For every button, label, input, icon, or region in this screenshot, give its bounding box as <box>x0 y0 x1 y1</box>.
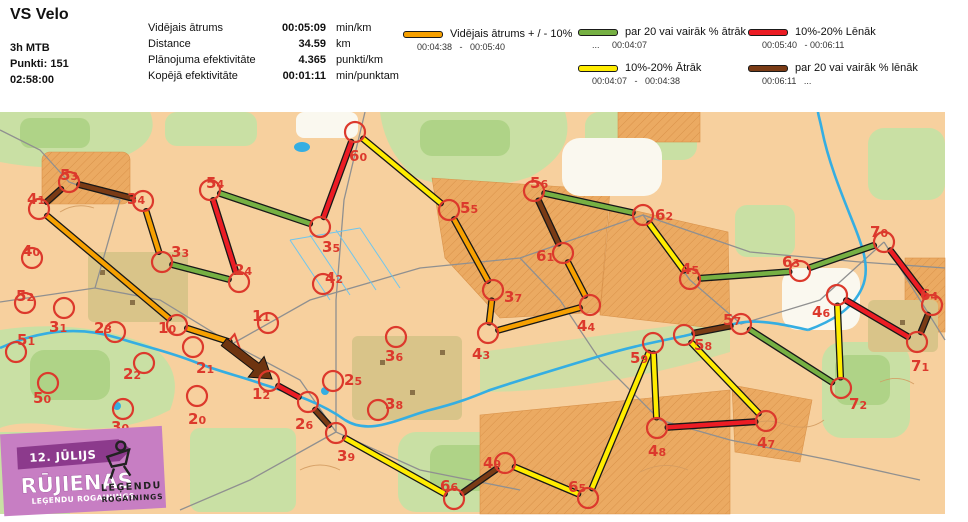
points-total: Punkti: 151 <box>10 56 69 72</box>
legend-slow20: par 20 vai vairāk % lēnāk 00:06:11 ... <box>748 62 918 86</box>
leg-43-37 <box>489 301 491 322</box>
legend-slow10: 10%-20% Lēnāk 00:05:40 - 00:06:11 <box>748 26 876 50</box>
legend-avg: Vidējais ātrums + / - 10% 00:04:38 - 00:… <box>403 28 572 52</box>
stats-table: Vidējais ātrums 00:05:09 min/km Distance… <box>148 20 399 84</box>
page-title: VS Velo <box>10 6 69 24</box>
header: VS Velo 3h MTB Punkti: 151 02:58:00 Vidē… <box>0 0 968 112</box>
legend-swatch-avg <box>403 31 443 38</box>
legend-swatch-slow10 <box>748 29 788 36</box>
class-label: 3h MTB <box>10 40 69 56</box>
legend-swatch-slow20 <box>748 65 788 72</box>
legend-swatch-fast20 <box>578 29 618 36</box>
leg-59-48 <box>654 354 657 417</box>
stat-row: Vidējais ātrums 00:05:09 min/km <box>148 20 399 36</box>
event-logo: 12. JŪLIJS RŪJIENAS LEĢENDU ROGAININGS L… <box>0 426 166 516</box>
total-time: 02:58:00 <box>10 72 69 88</box>
event-meta: 3h MTB Punkti: 151 02:58:00 <box>10 40 69 88</box>
legend-fast10: 10%-20% Ātrāk 00:04:07 - 00:04:38 <box>578 62 701 86</box>
legend-fast20: par 20 vai vairāk % ātrāk ... 00:04:07 <box>578 26 746 50</box>
stat-row: Plānojuma efektivitāte 4.365 punkti/km <box>148 52 399 68</box>
stat-row: Distance 34.59 km <box>148 36 399 52</box>
app-window: 4153343324543560553743446156624563706471… <box>0 0 968 522</box>
legend-swatch-fast10 <box>578 65 618 72</box>
leg-72-46 <box>837 306 840 377</box>
stat-row: Kopējā efektivitāte 00:01:11 min/punktam <box>148 68 399 84</box>
